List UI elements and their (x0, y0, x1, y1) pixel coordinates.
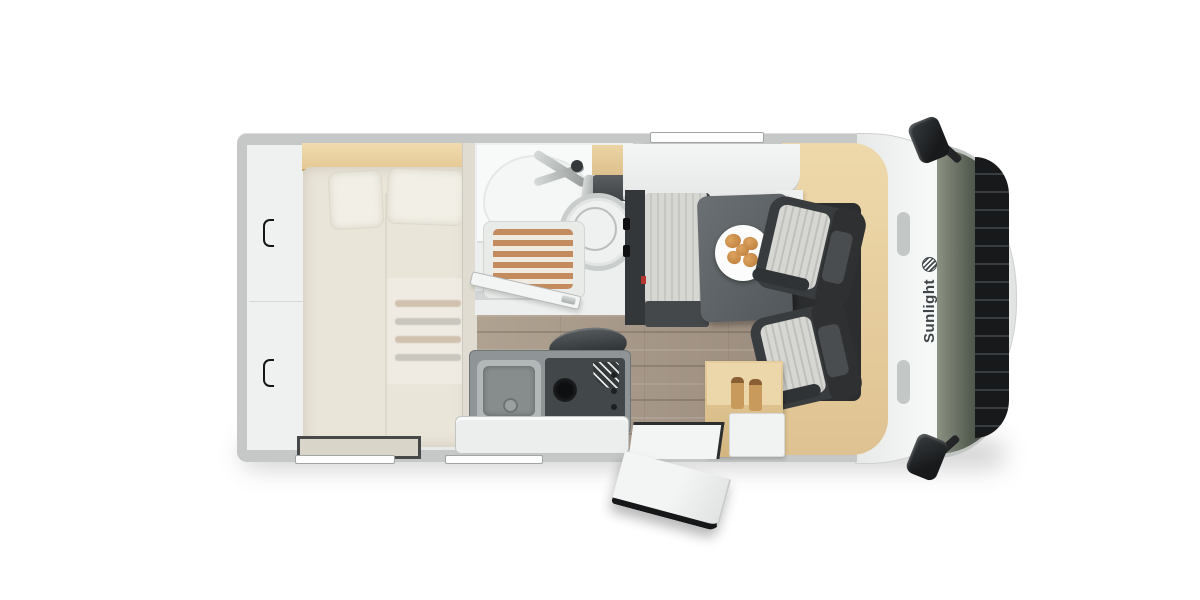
floorplan-canvas: Sunlight (0, 0, 1200, 600)
garage-latch-icon (263, 219, 274, 247)
washroom-door-handle (561, 295, 576, 305)
hinge-icon (623, 218, 630, 230)
bottle (731, 377, 744, 409)
hinge-icon (623, 245, 630, 257)
sink-drain-dot (571, 160, 583, 172)
roof-window-slot (650, 132, 764, 143)
cab-door-window-left (897, 212, 910, 256)
hob-burner (553, 378, 577, 402)
bottle (749, 379, 762, 411)
brand-name-text: Sunlight (921, 279, 938, 343)
ghost-bar (395, 300, 461, 307)
hob-knob (611, 404, 617, 410)
hob-knob (611, 388, 617, 394)
hood-grille (975, 157, 1009, 438)
stored-furniture-ghost-overlay (387, 278, 471, 384)
brand-lettering: Sunlight (920, 235, 938, 365)
skirt-slot-right (445, 455, 543, 464)
entry-side-shelf (729, 413, 785, 457)
entry-step-well (628, 422, 724, 459)
skirt-slot-left (295, 455, 395, 464)
kitchen-front-panel (455, 416, 629, 454)
cab-door-window-right (897, 360, 910, 404)
croissant (736, 244, 749, 256)
gas-hob (545, 358, 625, 424)
ghost-bar (395, 354, 461, 361)
kitchen-sink-drain (503, 398, 518, 413)
rear-garage-storage (247, 145, 305, 450)
sunlight-logo-icon (922, 257, 937, 272)
dinette-bench-side-panel (625, 190, 645, 325)
pillow-right (386, 168, 466, 227)
ghost-bar (395, 318, 461, 325)
motorhome-top-view: Sunlight (237, 133, 1015, 467)
hob-knob (611, 372, 617, 378)
bottle-cabinet-top (707, 363, 781, 405)
ghost-bar (395, 336, 461, 343)
kitchen-sink (477, 360, 541, 422)
seatbelt-detail (641, 276, 646, 284)
dinette-bench-frame (645, 301, 709, 327)
garage-divider-seam (249, 301, 303, 302)
garage-latch-icon (263, 359, 274, 387)
pillow-left (328, 170, 385, 231)
